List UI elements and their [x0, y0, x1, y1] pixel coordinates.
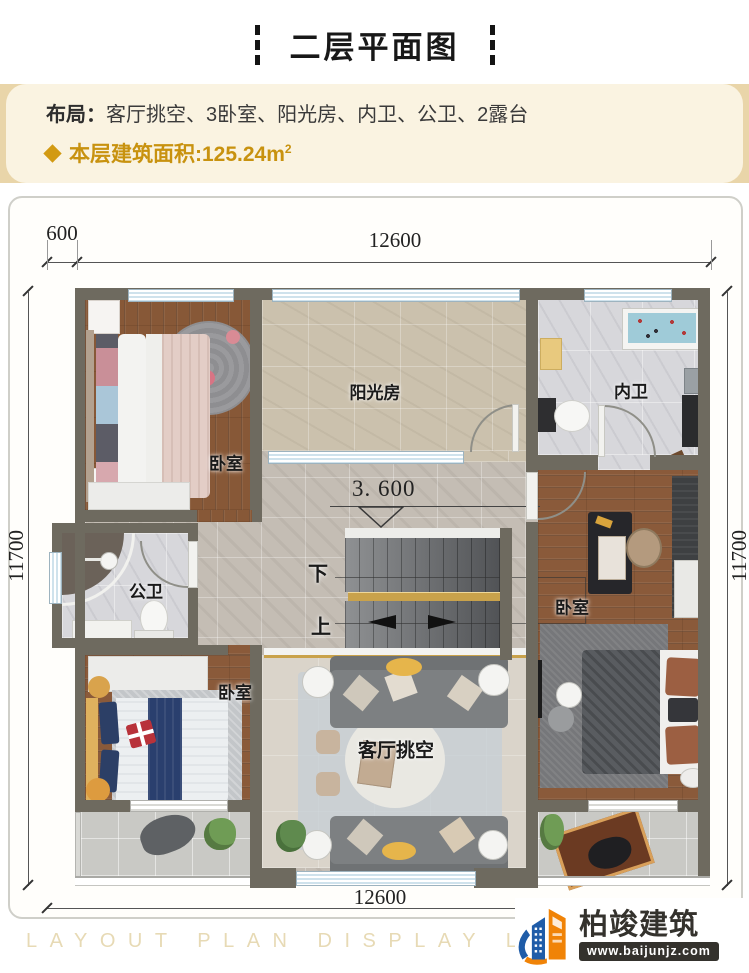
door-opening	[228, 645, 250, 655]
page: 二层平面图 布局：客厅挑空、3卧室、阳光房、内卫、公卫、2露台 本层建筑面积:1…	[0, 0, 749, 973]
shower-head	[100, 552, 118, 570]
pouf	[86, 778, 110, 802]
brand-url[interactable]: www.baijunjz.com	[579, 942, 719, 961]
wall	[188, 523, 198, 541]
bed-pillow	[665, 657, 701, 697]
square-pouf	[316, 730, 340, 754]
side-table	[302, 830, 332, 860]
plant	[204, 818, 236, 850]
room-label-sunroom: 阳光房	[350, 379, 401, 404]
door-leaf	[188, 541, 198, 588]
bed-headboard	[86, 330, 94, 502]
wall	[526, 522, 538, 888]
sofa-tray	[382, 842, 416, 860]
bed-runner	[148, 698, 182, 802]
layout-label: 布局：	[46, 104, 106, 126]
bathtub-water	[628, 313, 696, 343]
bed-pillows	[118, 334, 146, 498]
title-dash-right-icon	[490, 25, 495, 65]
bed-accent-pillows	[96, 334, 118, 498]
toilet	[554, 400, 590, 432]
layout-value: 客厅挑空、3卧室、阳光房、内卫、公卫、2露台	[106, 104, 528, 126]
door-opening	[598, 455, 650, 470]
wall	[698, 288, 710, 886]
sliding-door	[588, 800, 678, 812]
diamond-icon	[43, 144, 61, 162]
desk-chair	[626, 528, 662, 568]
window	[49, 552, 62, 604]
wall	[75, 800, 130, 812]
room-label-inner-bath: 内卫	[614, 378, 648, 403]
dim-extension	[47, 240, 48, 270]
desk-book	[598, 536, 626, 580]
side-table	[302, 666, 334, 698]
dim-line-right	[727, 292, 728, 886]
window	[272, 289, 520, 302]
wall	[228, 800, 262, 812]
dim-extension	[77, 240, 78, 270]
door-leaf	[598, 405, 605, 457]
wall	[535, 800, 588, 812]
stair-arrow-right-icon	[428, 615, 456, 629]
dim-line-top	[47, 262, 712, 263]
dim-left-height: 11700	[4, 530, 29, 582]
dim-line-left	[28, 292, 29, 886]
nightstand	[88, 300, 120, 334]
pouf	[548, 706, 574, 732]
wall	[500, 528, 512, 660]
bed-cushion	[668, 698, 698, 722]
dim-top-width: 12600	[300, 228, 490, 253]
door-leaf	[526, 472, 538, 520]
bath-stool	[540, 338, 562, 370]
room-label-bedroom-top-left: 卧室	[209, 450, 243, 475]
window	[584, 289, 672, 302]
wall	[474, 868, 538, 888]
room-label-living-void: 客厅挑空	[358, 736, 434, 763]
bed-pillow	[99, 701, 120, 744]
side-table	[478, 664, 510, 696]
area-text: 本层建筑面积:125.24m2	[69, 138, 292, 168]
area-line: 本层建筑面积:125.24m2	[46, 138, 292, 168]
wardrobe	[88, 482, 190, 510]
wall	[526, 288, 538, 462]
brand-name: 柏竣建筑	[579, 911, 699, 940]
pink-cushion	[226, 330, 240, 344]
stair-arrow-left-icon	[368, 615, 396, 629]
window	[268, 451, 464, 464]
wall	[75, 288, 85, 812]
side-table	[556, 682, 582, 708]
wall	[52, 523, 198, 533]
bed-pillow	[665, 725, 701, 765]
terrace-railing	[75, 876, 250, 886]
stair-up-label: 上	[311, 611, 331, 640]
door-leaf	[512, 404, 519, 452]
dim-extension	[711, 240, 712, 270]
wall	[75, 645, 228, 655]
layout-line: 布局：客厅挑空、3卧室、阳光房、内卫、公卫、2露台	[46, 98, 528, 127]
square-pouf	[316, 772, 340, 796]
wall	[535, 455, 598, 470]
wall	[75, 510, 197, 522]
title-dash-left-icon	[255, 25, 260, 65]
side-table	[478, 830, 508, 860]
elevation-triangle-icon	[358, 506, 404, 528]
sliding-door	[130, 800, 228, 812]
door-opening	[197, 510, 252, 522]
brand-text-block: 柏竣建筑 www.baijunjz.com	[579, 911, 719, 961]
wall	[526, 455, 538, 472]
wall	[188, 588, 198, 648]
sofa-tray	[386, 658, 422, 676]
brand-logo: 柏竣建筑 www.baijunjz.com	[515, 898, 749, 973]
stair-down-label: 下	[308, 558, 328, 587]
page-title: 二层平面图	[290, 22, 460, 67]
pouf	[88, 676, 110, 698]
bench	[538, 660, 542, 718]
terrace-curb	[75, 812, 81, 886]
bed-duvet	[162, 334, 210, 498]
wall	[250, 288, 262, 522]
wall	[650, 455, 710, 470]
page-header: 二层平面图	[0, 22, 749, 67]
room-label-bedroom-bottom-left: 卧室	[218, 679, 252, 704]
door-opening	[462, 451, 526, 462]
dim-right-height: 11700	[727, 530, 749, 582]
window	[296, 871, 476, 886]
window	[128, 289, 234, 302]
stair-landing	[345, 528, 500, 538]
room-label-public-bath: 公卫	[129, 578, 163, 603]
brand-building-icon	[515, 905, 575, 967]
wall	[678, 800, 710, 812]
terrace-railing	[538, 876, 710, 886]
bed-blanket	[582, 650, 660, 774]
dim-bottom-width: 12600	[285, 885, 475, 910]
room-label-bedroom-right: 卧室	[555, 594, 589, 619]
elevation-value: 3. 600	[352, 476, 416, 502]
